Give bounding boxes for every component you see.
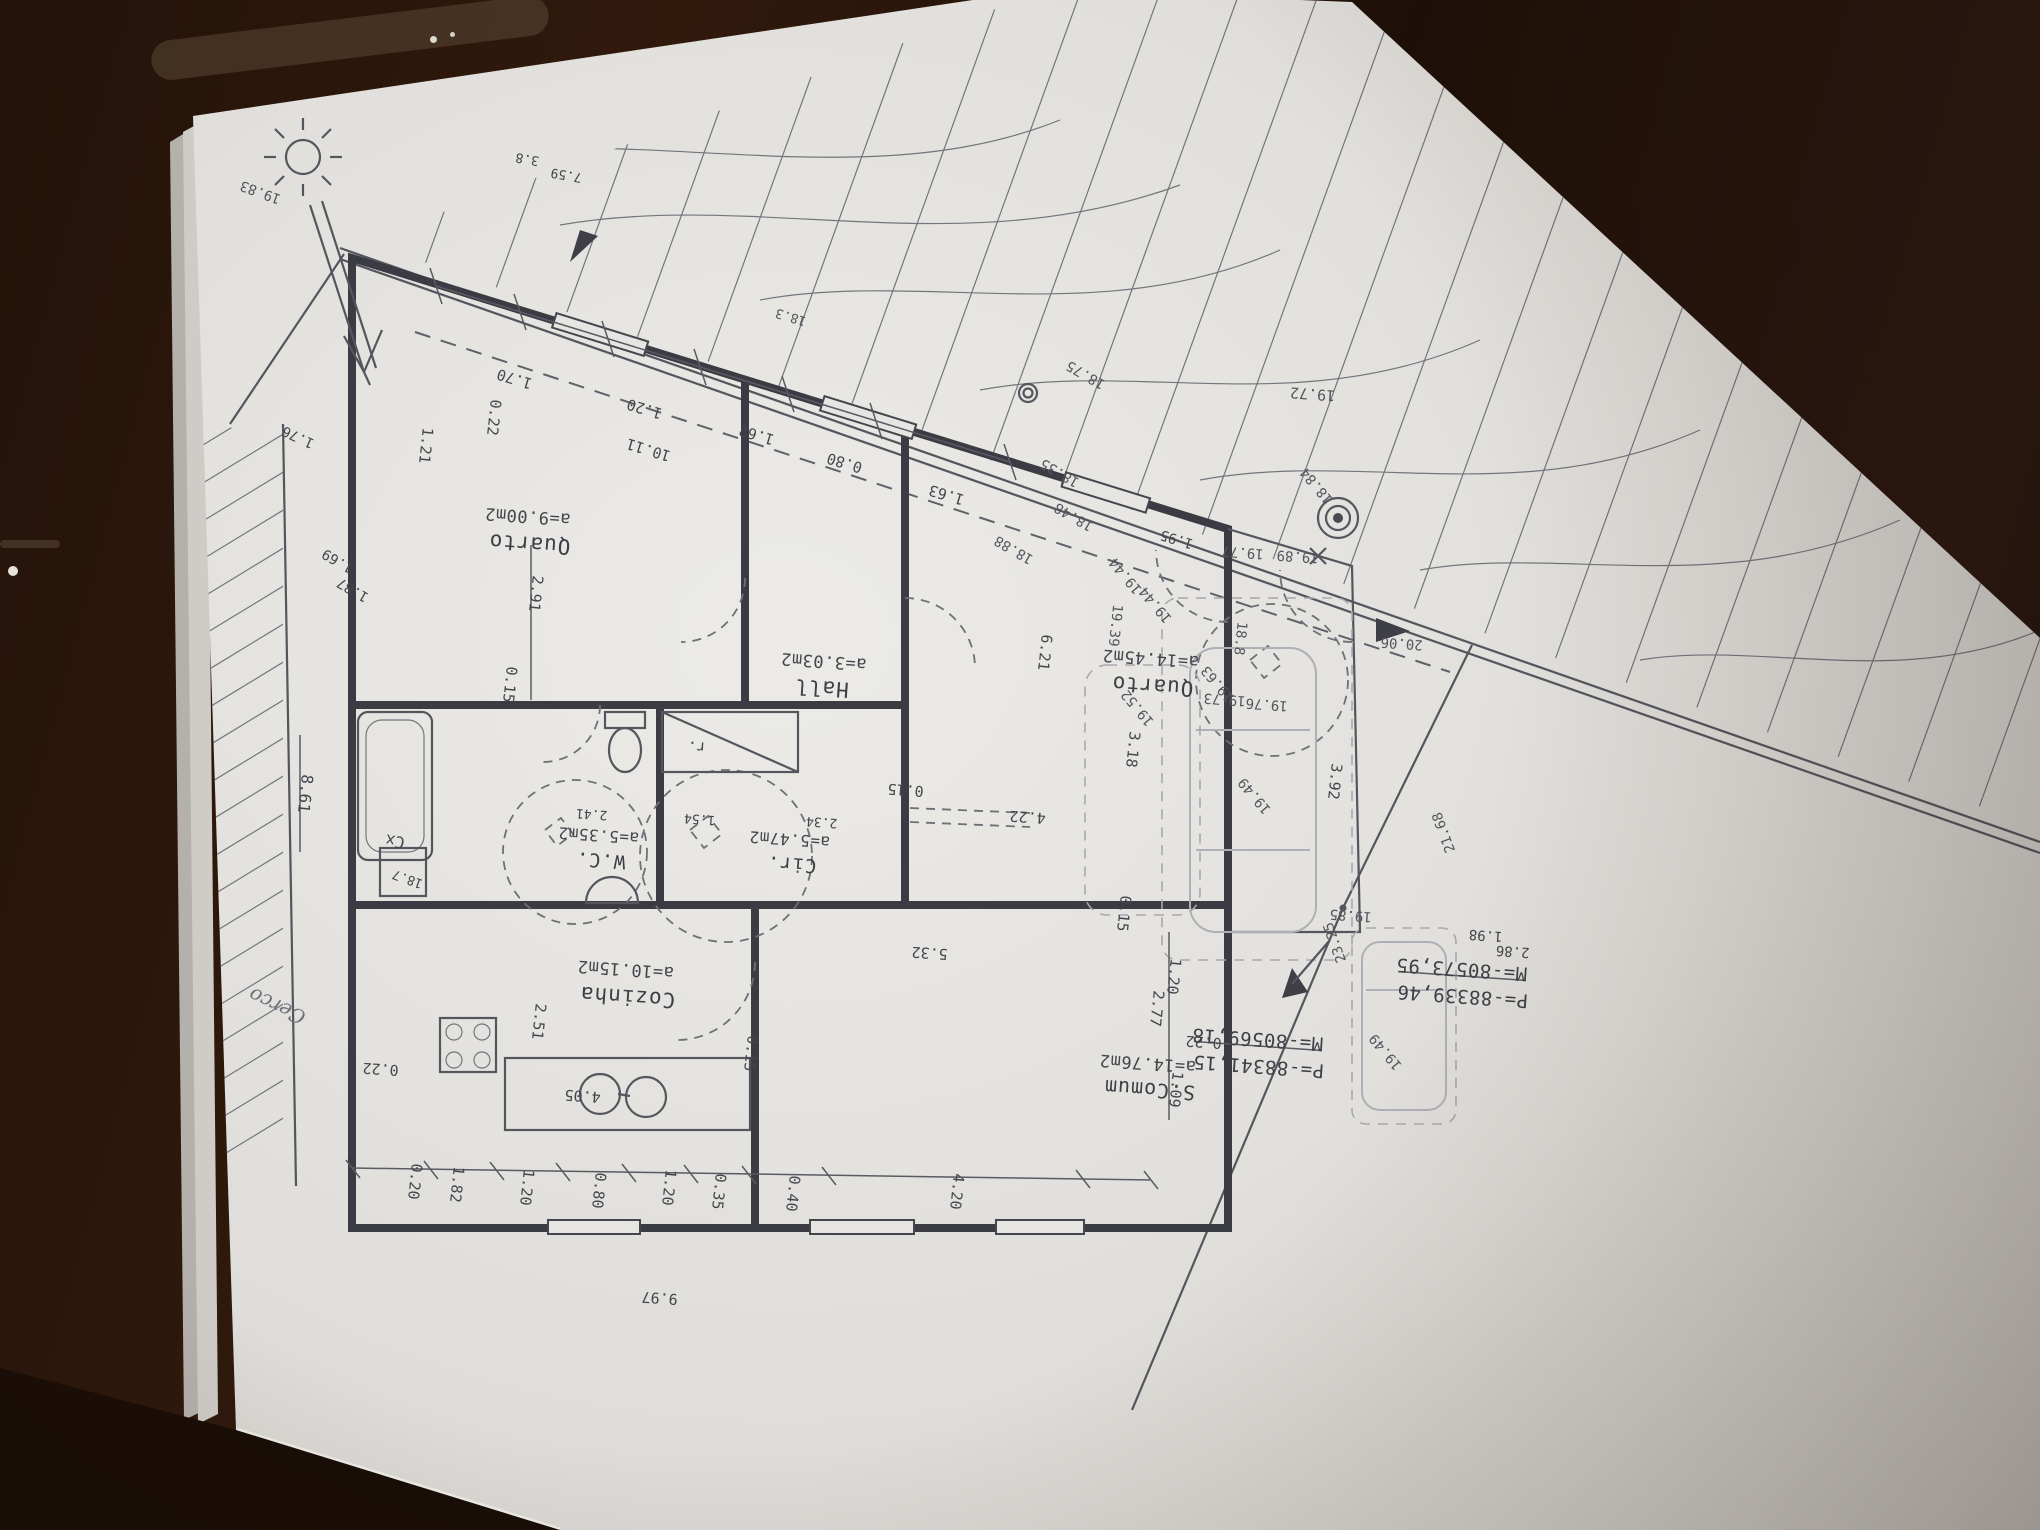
dim-label: 2.77 bbox=[1146, 990, 1168, 1028]
dim-label: 1.82 bbox=[446, 1166, 468, 1204]
dim-label: 1.54 bbox=[683, 810, 715, 827]
benchmark-target-icon bbox=[1333, 513, 1343, 523]
room-label: Hall bbox=[793, 674, 849, 702]
room-label: Cir. bbox=[766, 851, 817, 876]
elev-label: 19.77 bbox=[1221, 543, 1264, 562]
dim-label: 0.22 bbox=[483, 399, 505, 437]
dim-label: 2.86 bbox=[1495, 942, 1530, 960]
dim-label: 0.20 bbox=[404, 1163, 426, 1201]
window bbox=[548, 1220, 640, 1234]
dim-label: 4.05 bbox=[564, 1086, 601, 1106]
dim-label: 4.22 bbox=[1009, 807, 1046, 827]
photo-of-floor-plan: Quartoa=9.00m2Halla=3.03m2Quartoa=14.45m… bbox=[0, 0, 2040, 1530]
window bbox=[996, 1220, 1084, 1234]
dim-label: 0.15 bbox=[887, 780, 924, 800]
elev-label: 19.89 bbox=[1276, 547, 1319, 566]
elev-label: 19.76 bbox=[1245, 695, 1288, 714]
dim-label: 2.41 bbox=[576, 805, 608, 822]
dim-label: 0.80 bbox=[588, 1172, 610, 1210]
dim-label: 3.18 bbox=[1122, 731, 1144, 769]
dim-label: 5.32 bbox=[911, 943, 948, 963]
dim-label: 9.97 bbox=[641, 1288, 678, 1308]
dim-label: 0.15 bbox=[1113, 895, 1135, 933]
elev-label: 19.72 bbox=[1290, 383, 1336, 404]
dim-label: 1.21 bbox=[415, 427, 437, 465]
dim-label: 1.20 bbox=[658, 1169, 680, 1207]
elev-label: 20.06 bbox=[1380, 634, 1423, 653]
window bbox=[810, 1220, 914, 1234]
dim-label: 0.35 bbox=[708, 1173, 730, 1211]
dim-label: 4.20 bbox=[946, 1173, 968, 1211]
room-label: W.C. bbox=[575, 847, 626, 872]
dim-label: 0.40 bbox=[782, 1175, 804, 1213]
dim-label: 0.15 bbox=[740, 1035, 762, 1073]
dim-label: 2.91 bbox=[525, 575, 547, 613]
dim-label: 0.22 bbox=[362, 1059, 399, 1079]
elev-label: 19.73 bbox=[1203, 690, 1246, 709]
dim-label: 3.92 bbox=[1324, 763, 1346, 801]
dim-label: 1.20 bbox=[1163, 958, 1185, 996]
dim-label: 1.98 bbox=[1468, 926, 1503, 944]
dim-label: 2.34 bbox=[805, 813, 837, 830]
dim-label: 1.20 bbox=[516, 1169, 538, 1207]
floor-plan-scene: Quartoa=9.00m2Halla=3.03m2Quartoa=14.45m… bbox=[0, 0, 2040, 1530]
fixture-label: Cx bbox=[384, 830, 407, 852]
fixture-label: r. bbox=[687, 737, 706, 756]
dim-label: 1.09 bbox=[1165, 1071, 1187, 1109]
dim-label: 2.51 bbox=[528, 1003, 550, 1041]
dim-label: 8.61 bbox=[294, 773, 317, 813]
dim-label: 0.15 bbox=[499, 666, 521, 704]
dim-label: 6.21 bbox=[1034, 634, 1056, 672]
paper-sheet bbox=[193, 0, 2040, 1530]
